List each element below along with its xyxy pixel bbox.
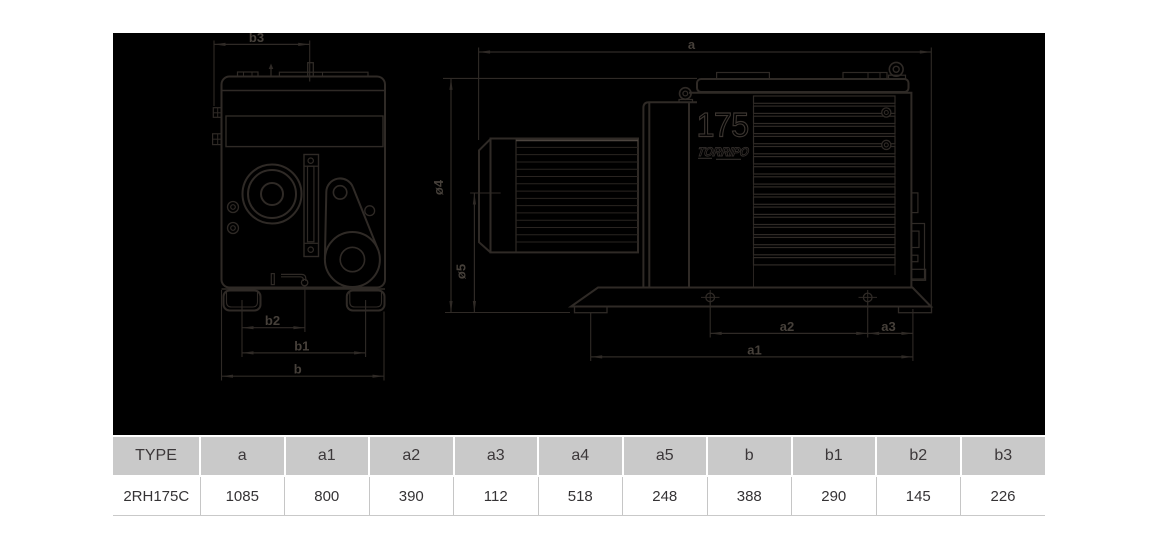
- svg-text:b1: b1: [294, 338, 309, 353]
- svg-text:a2: a2: [780, 319, 794, 334]
- svg-text:b3: b3: [249, 33, 264, 45]
- svg-text:b: b: [294, 362, 302, 377]
- svg-text:a1: a1: [747, 342, 761, 357]
- svg-text:a: a: [688, 37, 696, 52]
- svg-text:b2: b2: [265, 313, 280, 328]
- svg-text:ø5: ø5: [454, 264, 469, 279]
- svg-text:a3: a3: [881, 319, 895, 334]
- svg-text:ø4: ø4: [431, 179, 446, 195]
- svg-text:175: 175: [697, 106, 749, 144]
- svg-text:TORRIPO: TORRIPO: [696, 145, 750, 159]
